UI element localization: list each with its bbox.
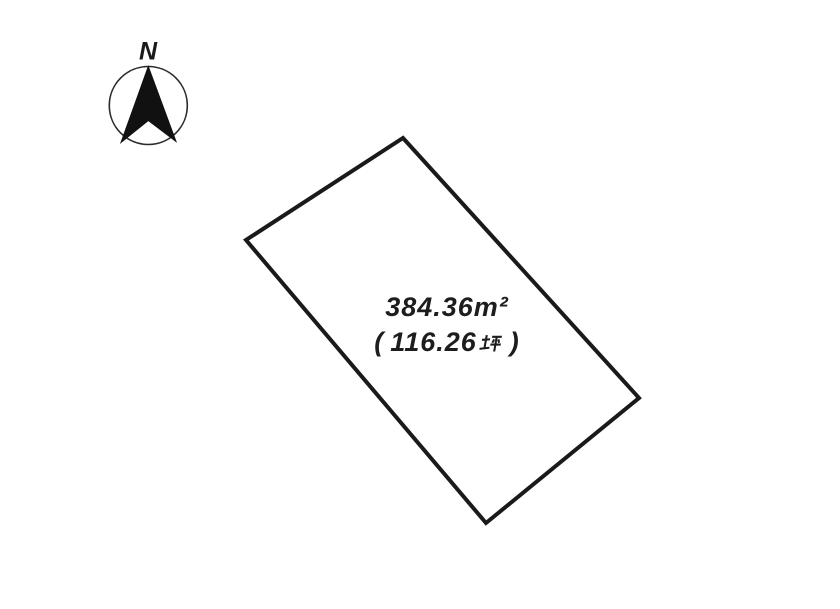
tsubo-value: 116.26 bbox=[390, 327, 477, 357]
compass-north-label: N bbox=[139, 38, 157, 67]
site-plan-diagram: N 384.36m² (116.26 ) bbox=[0, 0, 840, 609]
north-arrow-icon bbox=[121, 67, 176, 143]
tsubo-close-paren: ) bbox=[510, 327, 520, 357]
area-m2-label: 384.36m² bbox=[374, 292, 520, 323]
tsubo-kanji-glyph bbox=[478, 332, 503, 353]
area-label-block: 384.36m² (116.26 ) bbox=[374, 292, 520, 358]
area-tsubo-label: (116.26 ) bbox=[374, 327, 520, 358]
tsubo-open-paren: ( bbox=[374, 327, 384, 357]
